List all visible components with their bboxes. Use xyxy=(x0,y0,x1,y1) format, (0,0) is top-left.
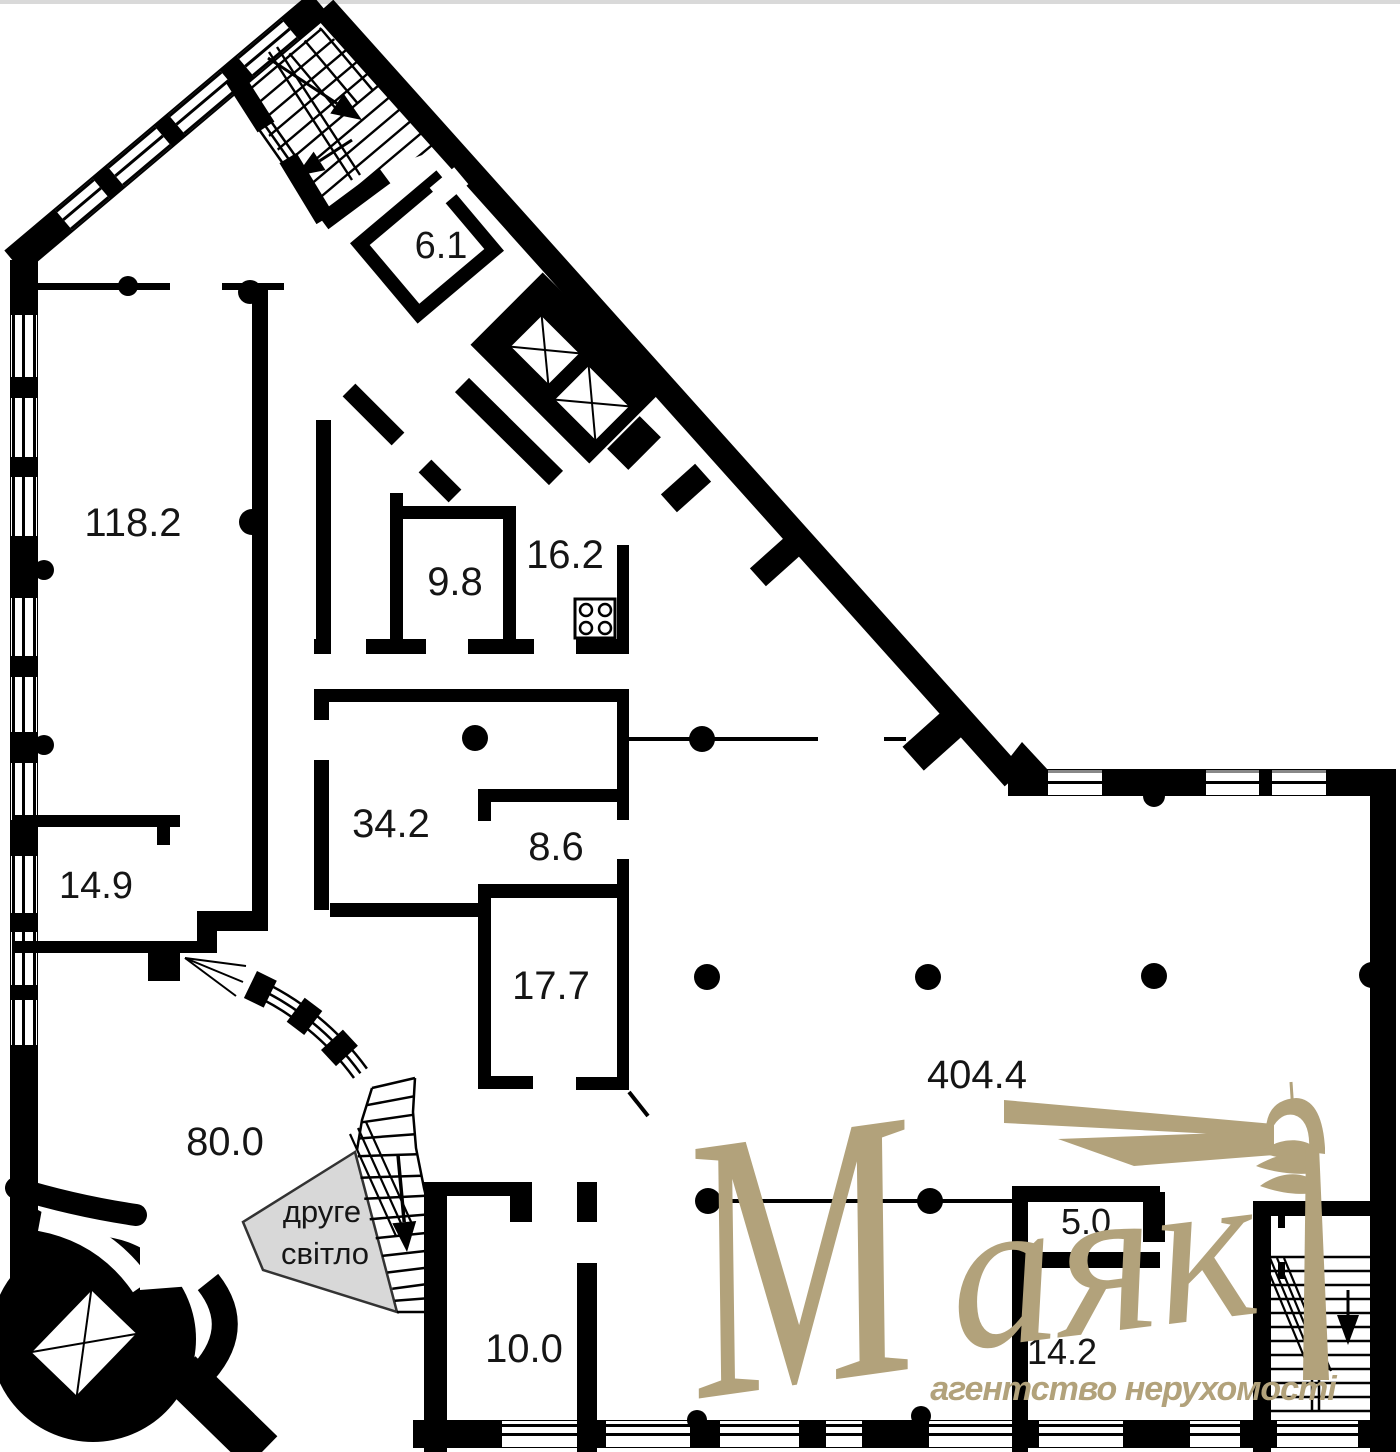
svg-text:аяк: аяк xyxy=(934,1122,1270,1397)
svg-text:6.1: 6.1 xyxy=(415,225,468,267)
svg-text:14.9: 14.9 xyxy=(59,865,133,907)
svg-text:10.0: 10.0 xyxy=(485,1327,563,1371)
svg-text:друге: друге xyxy=(283,1194,361,1229)
svg-text:9.8: 9.8 xyxy=(427,560,483,604)
svg-text:8.6: 8.6 xyxy=(528,825,584,869)
svg-text:404.4: 404.4 xyxy=(927,1053,1027,1097)
svg-text:агентство нерухомості: агентство нерухомості xyxy=(930,1370,1338,1408)
svg-text:16.2: 16.2 xyxy=(526,533,604,577)
svg-text:17.7: 17.7 xyxy=(512,964,590,1008)
svg-text:світло: світло xyxy=(281,1236,369,1271)
svg-text:34.2: 34.2 xyxy=(352,802,430,846)
svg-text:118.2: 118.2 xyxy=(84,501,181,545)
svg-text:80.0: 80.0 xyxy=(186,1120,264,1164)
